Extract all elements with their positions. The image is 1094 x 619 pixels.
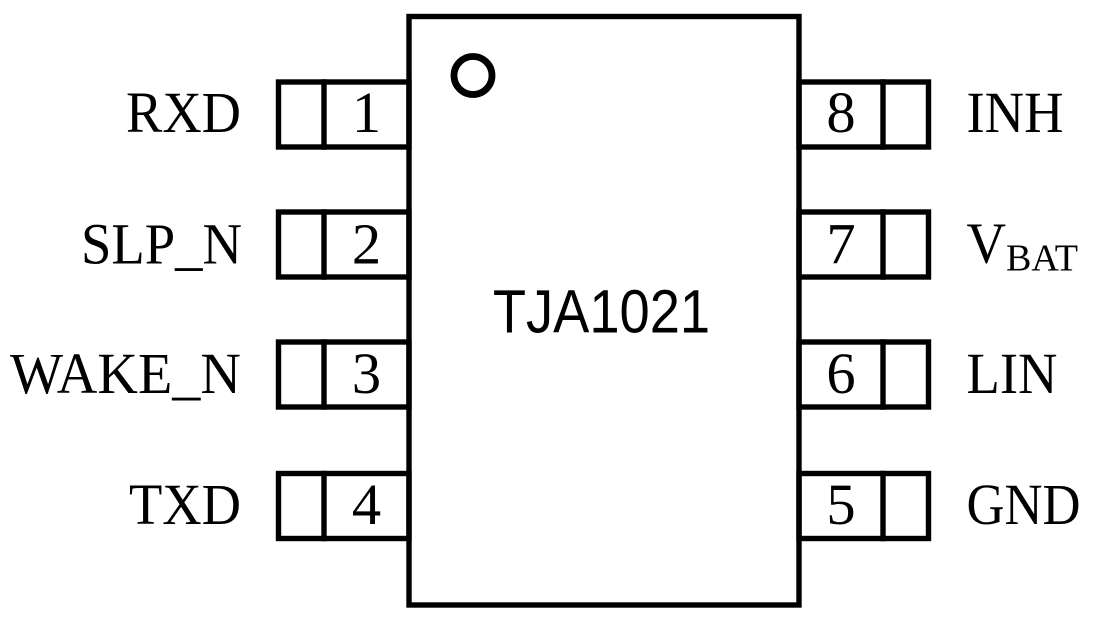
- svg-text:3: 3: [352, 341, 381, 406]
- svg-text:WAKE_N: WAKE_N: [10, 341, 241, 406]
- svg-text:TJA1021: TJA1021: [493, 279, 710, 347]
- svg-text:LIN: LIN: [967, 341, 1058, 406]
- svg-text:6: 6: [826, 341, 855, 406]
- svg-text:5: 5: [826, 472, 855, 537]
- svg-text:8: 8: [826, 80, 855, 145]
- svg-text:4: 4: [352, 472, 381, 537]
- svg-text:1: 1: [352, 80, 381, 145]
- svg-text:V: V: [967, 211, 1007, 276]
- svg-text:BAT: BAT: [1006, 237, 1078, 279]
- svg-text:2: 2: [352, 212, 381, 277]
- svg-text:RXD: RXD: [126, 80, 241, 145]
- svg-text:7: 7: [826, 212, 855, 277]
- svg-text:GND: GND: [967, 472, 1081, 537]
- svg-text:TXD: TXD: [129, 472, 241, 537]
- svg-text:SLP_N: SLP_N: [81, 212, 242, 277]
- svg-text:INH: INH: [967, 80, 1064, 145]
